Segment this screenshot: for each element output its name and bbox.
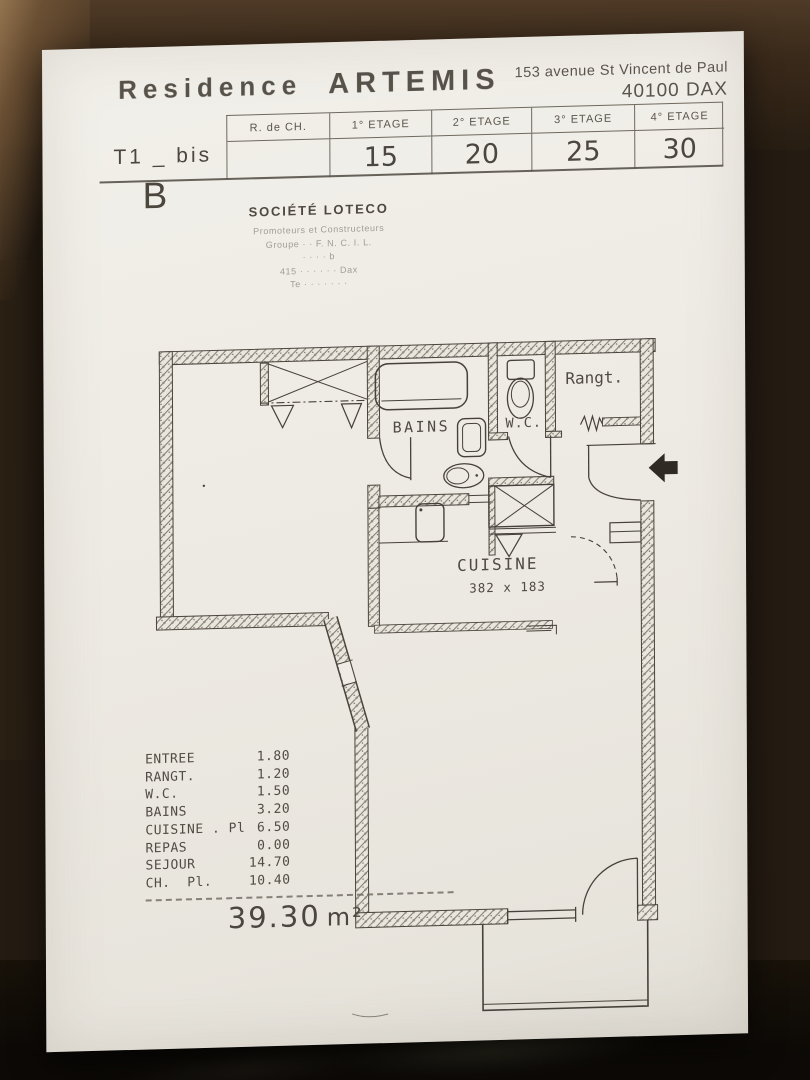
balcony (483, 920, 648, 1010)
total-area: 39.30m² (228, 898, 364, 936)
legend-value: 6.50 (257, 818, 290, 837)
window-bottom (508, 907, 576, 924)
wall-lowleft-vertical (355, 723, 369, 918)
legend-label: RANGT. (145, 768, 195, 787)
wall-top (159, 339, 655, 365)
kitchen-closet-box (489, 484, 556, 557)
legend-label: ENTREE (145, 750, 195, 769)
label-cuisine-dim: 382 x 183 (469, 579, 546, 596)
wall-wc-rangt-foot (546, 431, 562, 437)
wall-closet-strip (489, 480, 495, 555)
balcony-door (582, 858, 637, 915)
wc-door (509, 435, 551, 478)
table-wood-left-shade (0, 260, 40, 760)
bains-sink (458, 418, 486, 457)
diagonal-window-gap (344, 662, 350, 683)
legend-label: REPAS (145, 839, 187, 858)
bathtub (375, 362, 467, 410)
wall-bains-sejour (367, 346, 379, 438)
wall-bains-stub (368, 485, 380, 508)
label-rangt: Rangt. (565, 367, 623, 388)
water-heater-symbol (580, 415, 640, 431)
legend-value: 1.50 (257, 783, 290, 802)
wall-bottom-corner (638, 905, 658, 921)
wall-left (159, 352, 173, 624)
pen-squiggle (352, 1013, 388, 1017)
wall-wc-rangt (545, 341, 555, 431)
total-area-unit: m² (327, 903, 364, 932)
bains-door (380, 437, 411, 481)
plan-dot (203, 485, 205, 487)
photo-scene: ResidenceARTEMIS 153 avenue St Vincent d… (0, 0, 810, 1080)
wall-wc-stub (489, 433, 508, 441)
wardrobe-closet (260, 361, 367, 430)
wall-wc-left (488, 343, 497, 435)
legend-label: BAINS (145, 803, 187, 822)
wall-lowleft-horizontal (156, 612, 328, 630)
legend-value: 0.00 (257, 836, 290, 855)
wc-toilet (507, 360, 534, 419)
wall-kitchen-left (368, 508, 380, 626)
wardrobe-stub (260, 363, 268, 405)
legend-label: CUISINE . Pl (145, 820, 245, 840)
floor-plan-document: ResidenceARTEMIS 153 avenue St Vincent d… (42, 31, 748, 1052)
legend-label: SEJOUR (145, 856, 195, 875)
radiator-right (610, 522, 641, 543)
label-bains: BAINS (393, 417, 451, 437)
entrance-door (587, 444, 656, 502)
legend-label: W.C. (145, 786, 178, 805)
total-area-value: 39.30 (228, 899, 321, 936)
legend-value: 3.20 (257, 801, 290, 820)
wall-right-upper (640, 339, 653, 444)
wall-right-lower (641, 501, 656, 905)
legend-label: CH. Pl. (146, 874, 213, 894)
label-wc: W.C. (505, 415, 542, 432)
wall-kitchen-bottom (374, 620, 552, 633)
legend-value: 1.20 (257, 765, 290, 784)
wall-diagonal (330, 618, 362, 731)
legend-value: 1.80 (257, 748, 290, 767)
label-cuisine: CUISINE (457, 554, 538, 575)
wall-bottom-left (356, 909, 508, 928)
area-legend: ENTREE1.80 RANGT.1.20 W.C.1.50 BAINS3.20… (145, 748, 291, 894)
legend-value: 10.40 (249, 872, 291, 891)
legend-value: 14.70 (249, 854, 291, 873)
bidet (444, 463, 484, 488)
entrance-arrow-icon (649, 453, 678, 483)
wall-kitchen-top (379, 494, 469, 507)
